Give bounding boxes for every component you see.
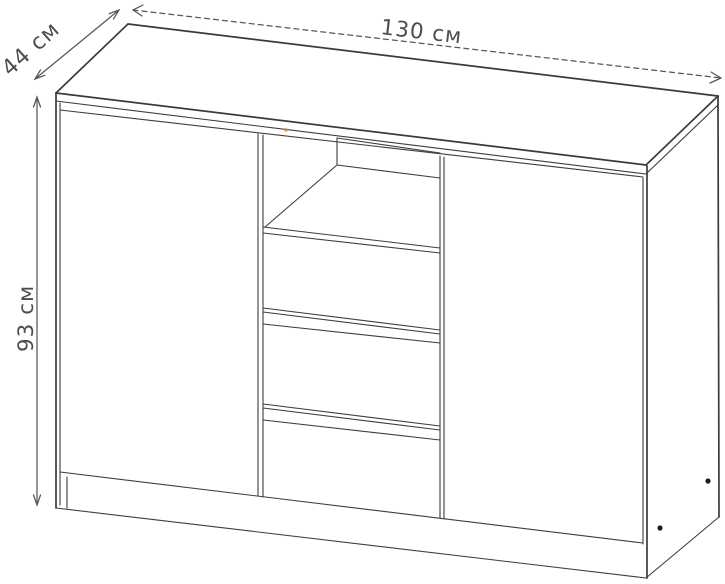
back-right-edge: [718, 96, 719, 517]
sideboard-dimension-diagram: 130 см 44 см 93 см: [0, 0, 725, 584]
artifact-speck: [284, 128, 288, 132]
depth-dimension-label: 44 см: [0, 17, 65, 82]
height-dimension: 93 см: [14, 97, 41, 505]
height-dimension-label: 93 см: [14, 285, 39, 352]
cabinet-faces: [56, 24, 719, 578]
furniture-diagram-stage: 130 см 44 см 93 см: [0, 0, 725, 584]
screw-dot-upper: [705, 478, 710, 483]
screw-dot-lower: [657, 525, 662, 530]
front-face: [56, 93, 646, 578]
right-side-face: [646, 96, 719, 578]
width-dimension-label: 130 см: [379, 15, 463, 49]
